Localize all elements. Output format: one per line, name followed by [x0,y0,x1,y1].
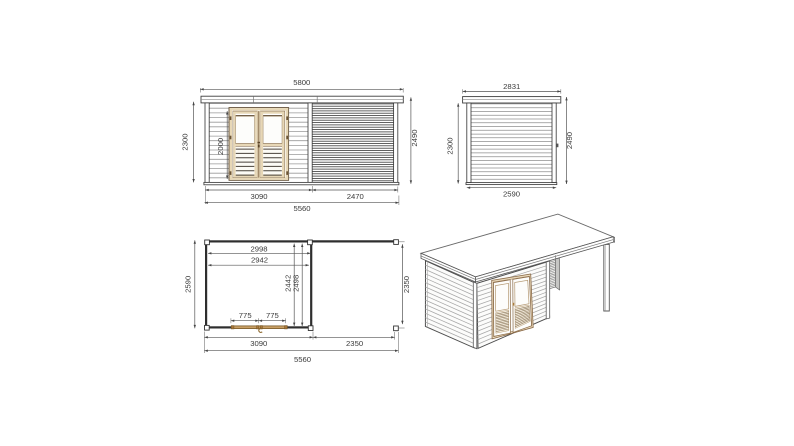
svg-text:2490: 2490 [410,129,419,146]
svg-text:2300: 2300 [181,133,190,150]
svg-text:775: 775 [266,311,279,320]
svg-text:3090: 3090 [250,339,267,348]
svg-text:2490: 2490 [565,132,574,149]
svg-text:5560: 5560 [294,355,311,364]
svg-text:2831: 2831 [503,82,520,91]
svg-text:775: 775 [239,311,252,320]
svg-text:3090: 3090 [250,192,267,201]
svg-text:2470: 2470 [347,192,364,201]
svg-text:2350: 2350 [346,339,363,348]
svg-text:2498: 2498 [292,275,301,292]
svg-text:2942: 2942 [251,256,268,265]
svg-text:2590: 2590 [503,189,520,198]
svg-text:5560: 5560 [293,204,310,213]
svg-text:2350: 2350 [402,276,411,293]
svg-text:2590: 2590 [184,276,193,293]
svg-text:5800: 5800 [293,78,310,87]
svg-text:2998: 2998 [250,245,267,254]
svg-text:2300: 2300 [446,137,455,154]
svg-text:2000: 2000 [216,138,225,155]
